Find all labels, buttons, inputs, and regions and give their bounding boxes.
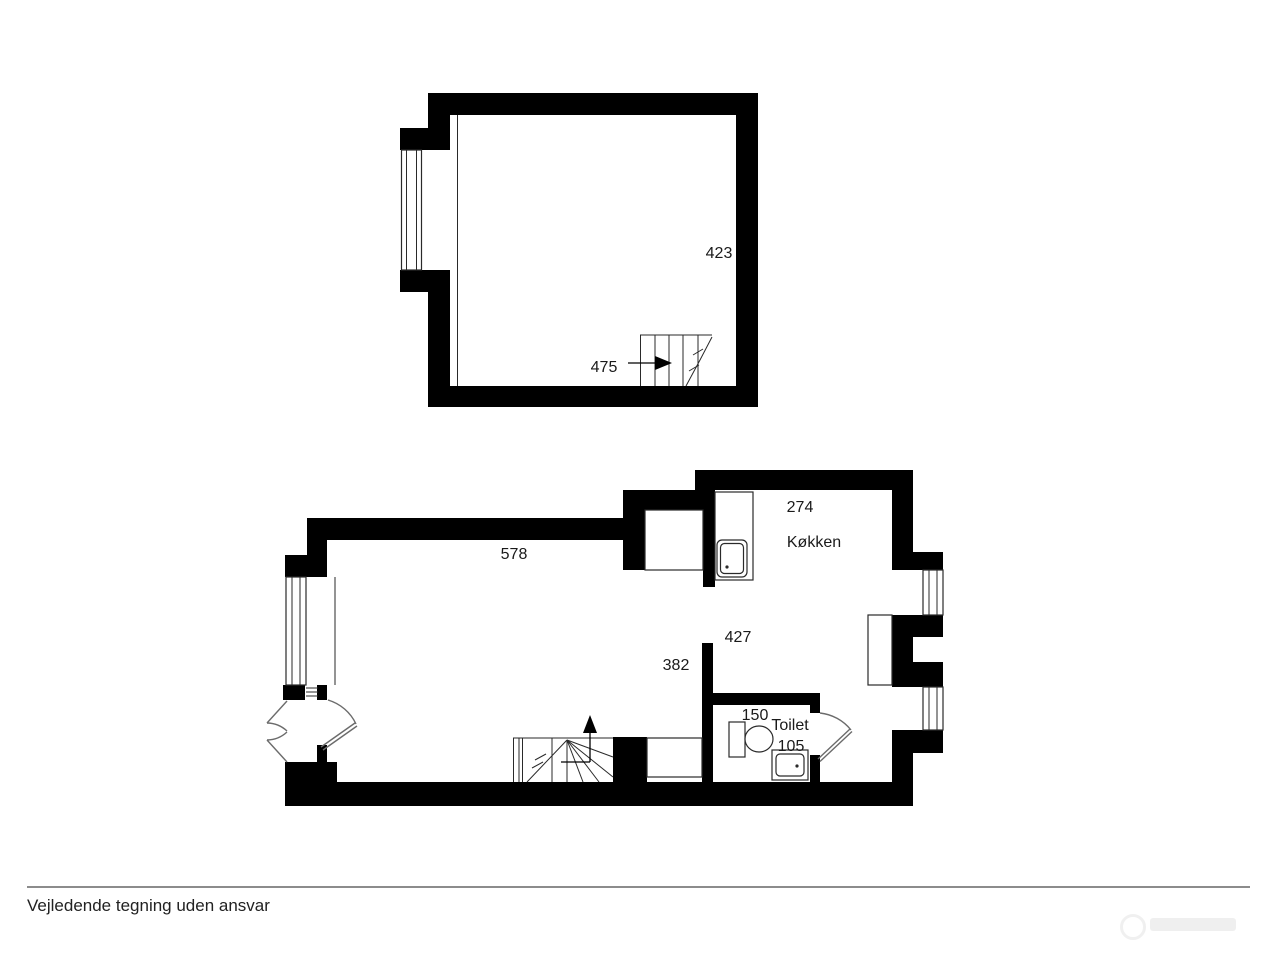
stairs-upper-icon xyxy=(640,335,712,386)
wc-cistern xyxy=(729,722,745,757)
stairs-lower-icon xyxy=(513,738,613,782)
floor-plan-page: 423 475 xyxy=(0,0,1280,960)
footer-divider xyxy=(27,886,1250,888)
sink-drain xyxy=(725,565,728,568)
toilet-door-icon xyxy=(818,713,852,762)
upper-walls xyxy=(400,93,758,407)
kitchen-sink-icon xyxy=(715,492,753,580)
watermark-bar xyxy=(1150,918,1236,931)
niche-outline xyxy=(645,510,703,570)
radiator-icon xyxy=(868,615,892,685)
dim-kitchen-width: 274 xyxy=(787,499,814,516)
toilet-wc-icon xyxy=(729,722,773,757)
watermark-logo xyxy=(1120,912,1240,938)
upper-floor-plan: 423 475 xyxy=(400,93,758,407)
lower-walls xyxy=(283,470,943,806)
dim-living-depth: 382 xyxy=(663,657,690,674)
dim-living-width: 578 xyxy=(501,546,528,563)
dim-upper-depth: 423 xyxy=(706,245,733,262)
window-frame xyxy=(402,150,422,270)
stair-direction-arrow xyxy=(628,356,672,370)
lower-floor-plan: 578 274 Køkken 427 382 150 Toilet 105 xyxy=(267,470,943,806)
living-window-icon xyxy=(286,577,335,696)
floor-plan-drawing: 423 475 xyxy=(0,0,1280,960)
dim-toilet-depth: 105 xyxy=(778,738,805,755)
sink-drain xyxy=(795,764,798,767)
window-frame xyxy=(286,577,306,685)
dim-toilet-width: 150 xyxy=(742,707,769,724)
understair-cupboard xyxy=(647,738,702,777)
watermark-circle xyxy=(1120,914,1146,940)
dim-upper-width: 475 xyxy=(591,359,618,376)
wc-bowl xyxy=(745,726,773,752)
room-label-kitchen: Køkken xyxy=(787,534,841,551)
dim-hall-depth: 427 xyxy=(725,629,752,646)
disclaimer-text: Vejledende tegning uden ansvar xyxy=(27,896,270,916)
upper-window-icon xyxy=(402,150,422,270)
kitchen-window-upper-icon xyxy=(923,570,943,615)
room-label-toilet: Toilet xyxy=(771,717,809,734)
entrance-door-icon xyxy=(267,700,357,762)
kitchen-window-lower-icon xyxy=(923,687,943,730)
